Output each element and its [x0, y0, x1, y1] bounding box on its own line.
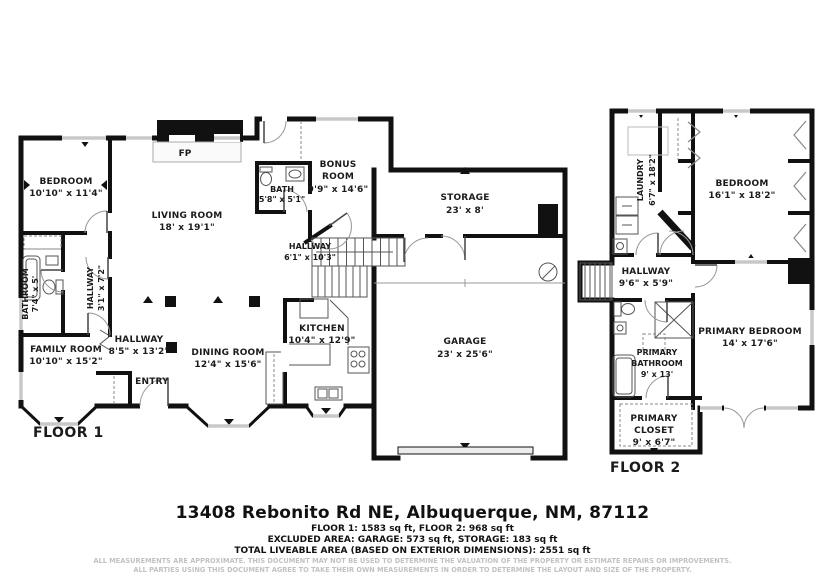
storage-name: STORAGE: [440, 193, 489, 203]
floor1-label: FLOOR 1: [33, 425, 104, 441]
kitchen-name: KITCHEN: [299, 324, 345, 334]
floor-areas-line: FLOOR 1: 1583 sq ft, FLOOR 2: 968 sq ft: [0, 524, 825, 535]
primary-bathroom-line2: BATHROOM: [631, 359, 683, 368]
floor-plan-drawing: FP BEDROOM 10'10" x 11'4" LIVING ROOM 18…: [0, 0, 825, 583]
bedroom1-dims: 10'10" x 11'4": [29, 189, 103, 199]
fireplace-label: FP: [179, 149, 192, 159]
bonus-room-line1: BONUS: [320, 160, 357, 170]
floor2-label: FLOOR 2: [610, 460, 681, 476]
primary-closet-line1: PRIMARY: [630, 414, 677, 424]
laundry-dims: 6'7" x 18'2": [648, 154, 657, 206]
dining-room-dims: 12'4" x 15'6": [194, 360, 261, 370]
bonus-room-line2: ROOM: [322, 172, 354, 182]
bedroom2-name: BEDROOM: [715, 179, 768, 189]
hallway-bath-dims: 3'1" x 7'2": [97, 265, 106, 311]
living-room-name: LIVING ROOM: [152, 211, 223, 221]
primary-bathroom-line1: PRIMARY: [637, 348, 678, 357]
excluded-areas-line: EXCLUDED AREA: GARAGE: 573 sq ft, STORAG…: [0, 535, 825, 546]
family-room-name: FAMILY ROOM: [30, 345, 102, 355]
disclaimer-line-2: ALL PARTIES USING THIS DOCUMENT AGREE TO…: [0, 566, 825, 575]
hallway2-name: HALLWAY: [622, 267, 671, 277]
bathroom1-name: BATHROOM: [21, 268, 30, 320]
kitchen-dims: 10'4" x 12'9": [288, 336, 355, 346]
address-line: 13408 Rebonito Rd NE, Albuquerque, NM, 8…: [0, 503, 825, 523]
laundry-name: LAUNDRY: [636, 159, 645, 202]
floor2-exterior-walls: [580, 111, 812, 452]
bathroom1-dims: 7'4" x 5': [31, 276, 40, 313]
floor2-angled-wall: [660, 212, 693, 248]
bath-dims: 5'8" x 5'1": [259, 195, 305, 204]
garage-door: [398, 447, 533, 454]
bedroom2-dims: 16'1" x 18'2": [708, 191, 775, 201]
disclaimer-line-1: ALL MEASUREMENTS ARE APPROXIMATE. THIS D…: [0, 557, 825, 566]
total-area-line: TOTAL LIVEABLE AREA (BASED ON EXTERIOR D…: [0, 546, 825, 557]
primary-bedroom-dims: 14' x 17'6": [722, 339, 778, 349]
hallway-entry-dims: 8'5" x 13'2": [109, 347, 170, 357]
footer-text-block: 13408 Rebonito Rd NE, Albuquerque, NM, 8…: [0, 503, 825, 574]
storage-dims: 23' x 8': [446, 206, 484, 216]
hallway-center-name: HALLWAY: [289, 242, 331, 251]
bonus-room-dims: 9'9" x 14'6": [308, 185, 369, 195]
primary-bathroom-dims: 9' x 13': [641, 370, 673, 379]
living-room-dims: 18' x 19'1": [159, 223, 215, 233]
primary-closet-dims: 9' x 6'7": [633, 438, 676, 448]
dining-room-name: DINING ROOM: [191, 348, 264, 358]
entry-label: ENTRY: [135, 377, 169, 387]
family-room-dims: 10'10" x 15'2": [29, 357, 103, 367]
hallway-entry-name: HALLWAY: [115, 335, 164, 345]
floorplan-page: FP BEDROOM 10'10" x 11'4" LIVING ROOM 18…: [0, 0, 825, 583]
bath-name: BATH: [270, 185, 294, 194]
primary-bedroom-name: PRIMARY BEDROOM: [698, 327, 802, 337]
hallway2-dims: 9'6" x 5'9": [619, 279, 673, 289]
garage-dims: 23' x 25'6": [437, 350, 493, 360]
garage-interior-line: [374, 279, 565, 287]
hallway-center-dims: 6'1" x 10'3": [284, 253, 336, 262]
garage-name: GARAGE: [444, 337, 487, 347]
primary-closet-line2: CLOSET: [634, 426, 674, 436]
hallway-bath-name: HALLWAY: [86, 267, 95, 309]
floor1-windows: [21, 119, 358, 426]
bedroom1-name: BEDROOM: [39, 177, 92, 187]
